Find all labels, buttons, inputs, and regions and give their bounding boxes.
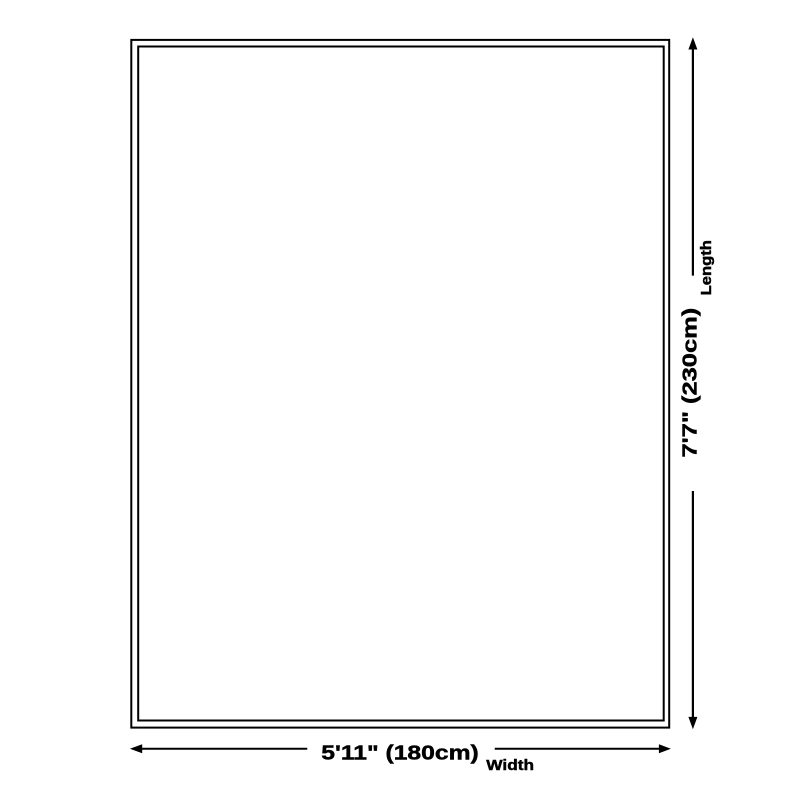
svg-text:5'11" (180cm): 5'11" (180cm) (321, 741, 478, 764)
svg-text:Length: Length (699, 240, 715, 295)
svg-text:Width: Width (486, 757, 534, 774)
svg-text:7'7" (230cm): 7'7" (230cm) (678, 308, 701, 458)
